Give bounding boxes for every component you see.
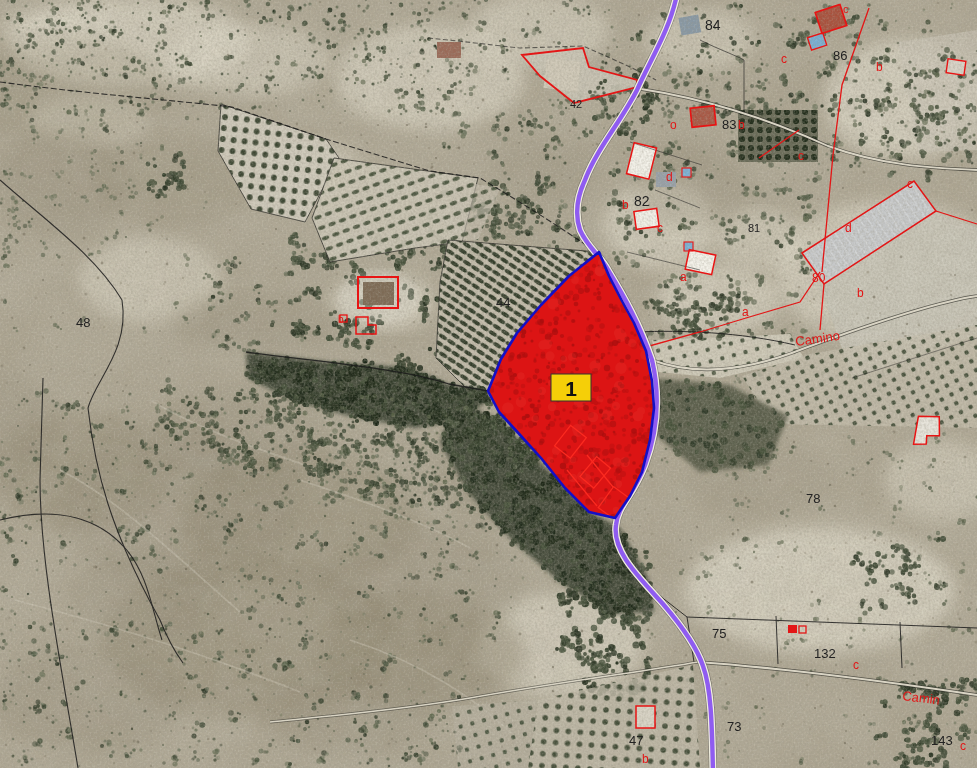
svg-text:84: 84 — [705, 17, 721, 33]
svg-text:1: 1 — [565, 377, 577, 400]
svg-text:47: 47 — [629, 733, 643, 748]
svg-text:c: c — [843, 3, 849, 15]
svg-text:a: a — [742, 305, 749, 319]
svg-text:b: b — [876, 60, 883, 74]
svg-text:c: c — [657, 221, 663, 235]
svg-text:42: 42 — [570, 98, 582, 110]
svg-text:b: b — [857, 286, 864, 300]
svg-text:48: 48 — [76, 315, 90, 330]
svg-text:b: b — [738, 118, 745, 132]
svg-text:80: 80 — [812, 271, 826, 285]
svg-text:c: c — [781, 52, 787, 66]
svg-text:c: c — [907, 177, 913, 191]
svg-text:b: b — [622, 198, 629, 212]
svg-text:132: 132 — [814, 646, 836, 661]
svg-text:78: 78 — [806, 491, 820, 506]
svg-text:73: 73 — [727, 719, 741, 734]
svg-text:d: d — [845, 221, 852, 235]
svg-text:d: d — [666, 170, 673, 184]
svg-text:75: 75 — [712, 626, 726, 641]
svg-text:b: b — [642, 752, 649, 766]
svg-text:82: 82 — [634, 193, 650, 209]
svg-text:c: c — [853, 658, 859, 672]
svg-text:a: a — [680, 270, 687, 284]
svg-text:b: b — [338, 314, 344, 325]
svg-text:c: c — [960, 739, 966, 753]
svg-text:c: c — [798, 149, 804, 163]
svg-text:143: 143 — [931, 733, 953, 748]
svg-text:44: 44 — [496, 295, 510, 310]
svg-text:81: 81 — [748, 222, 760, 234]
svg-text:83: 83 — [722, 117, 736, 132]
svg-text:86: 86 — [833, 48, 847, 63]
svg-text:o: o — [670, 118, 677, 132]
